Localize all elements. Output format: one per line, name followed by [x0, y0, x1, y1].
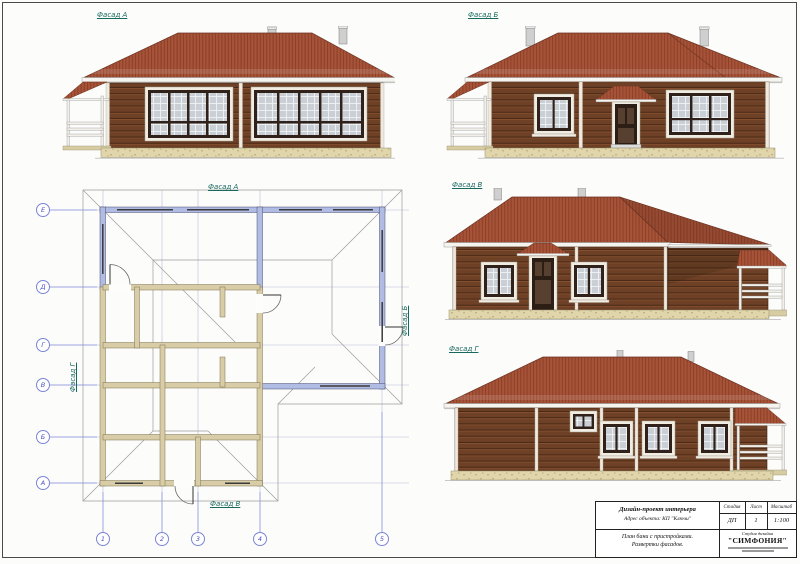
porch [63, 82, 111, 150]
drawing-title-line2: Развертки фасадов. [596, 542, 719, 548]
floor-plan-drawing [35, 182, 415, 552]
axis-bubble-row-v: В [36, 378, 50, 392]
small-window [570, 411, 597, 432]
window-2 [640, 421, 677, 459]
axis-bubble-col-4: 4 [253, 532, 267, 546]
title-block-divider [719, 502, 720, 557]
axis-bubble-col-5: 5 [375, 532, 389, 546]
right-window [666, 90, 734, 138]
plinth [95, 148, 395, 159]
facade-b-label: Фасад Б [468, 11, 498, 19]
facade-g-drawing [437, 350, 787, 490]
studio-name: "СИМФОНИЯ" [719, 536, 796, 545]
window-band-1 [145, 87, 233, 141]
title-block-divider [719, 513, 796, 514]
facade-b-drawing [440, 26, 785, 166]
title-block: Дизайн-проект интерьера Адрес объекта: К… [595, 501, 797, 558]
stage-value: ДП [719, 517, 745, 524]
roof [444, 357, 780, 409]
scale-value: 1:100 [767, 517, 796, 524]
project-address: Адрес объекта: КП "Ключи" [596, 516, 719, 522]
scale-header: Масштаб [767, 505, 796, 510]
axis-bubble-row-a: А [36, 476, 50, 490]
plan-left-label: Фасад Г [69, 363, 77, 392]
facade-v-drawing [437, 188, 787, 338]
axis-bubble-row-b: Б [36, 430, 50, 444]
axis-bubble-row-d: Д [36, 280, 50, 294]
roof [465, 33, 782, 83]
drawing-sheet: Фасад А Фасад Б Фасад В Фасад Г [0, 0, 800, 564]
window-1 [598, 421, 635, 459]
walls-blue [100, 207, 385, 389]
axis-bubble-col-1: 1 [96, 532, 110, 546]
porch [447, 82, 493, 150]
facade-a-drawing [55, 26, 395, 166]
axis-bubble-col-3: 3 [191, 532, 205, 546]
window-3 [696, 421, 733, 459]
drawing-title-line1: План бани с пристройками. [596, 534, 719, 540]
plinth [445, 471, 781, 481]
axis-bubble-row-e: Е [36, 203, 50, 217]
plinth [478, 148, 784, 159]
walls-log [100, 285, 263, 487]
axis-bubble-row-g: Г [36, 338, 50, 352]
facade-a-label: Фасад А [97, 11, 127, 19]
title-block-divider [596, 529, 796, 530]
roof [82, 33, 395, 83]
sheet-header: Лист [745, 505, 767, 510]
axis-bubble-col-2: 2 [155, 532, 169, 546]
plinth [445, 310, 781, 320]
project-title: Дизайн-проект интерьера [596, 506, 719, 513]
right-window [569, 262, 609, 303]
plan-right-label: Фасад Б [401, 306, 409, 336]
studio-fineprint-line [742, 550, 774, 552]
stage-header: Стадия [719, 505, 745, 510]
sheet-value: 1 [745, 517, 767, 524]
small-window [532, 94, 576, 137]
left-window [479, 262, 519, 303]
roof [444, 197, 771, 247]
plan-bottom-label: Фасад В [210, 500, 240, 508]
studio-fineprint-line [728, 547, 788, 549]
window-band-2 [251, 87, 367, 141]
plan-top-label: Фасад А [208, 183, 238, 191]
